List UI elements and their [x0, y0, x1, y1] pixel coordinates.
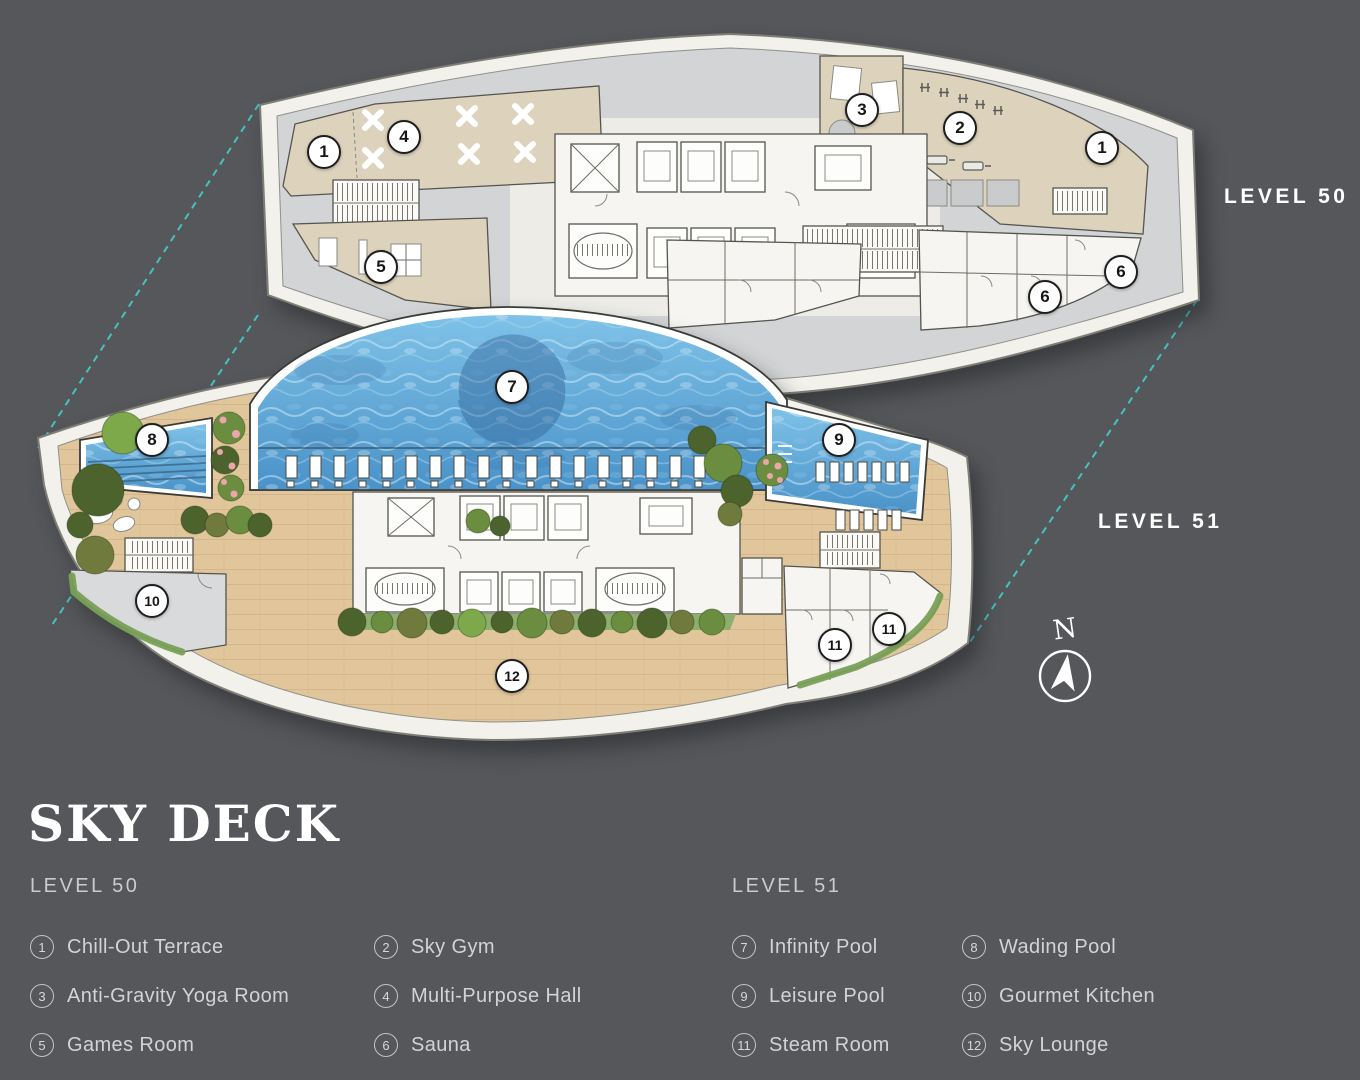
legend-item-label: Sky Lounge [999, 1034, 1109, 1057]
compass-north-label: N [1051, 613, 1079, 647]
legend-item-label: Anti-Gravity Yoga Room [67, 985, 289, 1008]
legend-number-circle: 7 [732, 935, 756, 959]
legend-column-4: 8Wading Pool10Gourmet Kitchen12Sky Loung… [962, 930, 1155, 1062]
plan-badge-7: 7 [495, 370, 529, 404]
compass: N [1020, 604, 1110, 714]
legend-item-5: 5Games Room [30, 1028, 289, 1062]
legend-number-circle: 12 [962, 1033, 986, 1057]
legend-item-8: 8Wading Pool [962, 930, 1155, 964]
legend-item-10: 10Gourmet Kitchen [962, 979, 1155, 1013]
legend-item-label: Games Room [67, 1034, 194, 1057]
page-title: SKY DECK [28, 799, 340, 849]
legend-item-label: Gourmet Kitchen [999, 985, 1155, 1008]
plan-badge-10: 10 [135, 584, 169, 618]
legend-item-11: 11Steam Room [732, 1028, 890, 1062]
legend-number-circle: 1 [30, 935, 54, 959]
legend-number-circle: 3 [30, 984, 54, 1008]
legend-item-label: Wading Pool [999, 936, 1116, 959]
legend-item-label: Multi-Purpose Hall [411, 985, 582, 1008]
legend-item-6: 6Sauna [374, 1028, 582, 1062]
legend-number-circle: 10 [962, 984, 986, 1008]
sky-deck-brochure-page: 14321566 78910111112 LEVEL 50 LEVEL 51 N… [0, 0, 1360, 1080]
legend-item-label: Infinity Pool [769, 936, 878, 959]
plan-badge-11: 11 [872, 612, 906, 646]
legend-item-label: Steam Room [769, 1034, 890, 1057]
legend-item-label: Chill-Out Terrace [67, 936, 223, 959]
level-50-plan-label: LEVEL 50 [1224, 186, 1349, 207]
level-51-badge-layer: 78910111112 [0, 0, 1360, 1080]
legend-number-circle: 9 [732, 984, 756, 1008]
legend-number-circle: 2 [374, 935, 398, 959]
legend-number-circle: 4 [374, 984, 398, 1008]
legend-number-circle: 8 [962, 935, 986, 959]
legend-item-1: 1Chill-Out Terrace [30, 930, 289, 964]
legend-item-4: 4Multi-Purpose Hall [374, 979, 582, 1013]
legend-item-2: 2Sky Gym [374, 930, 582, 964]
legend-column-2: 2Sky Gym4Multi-Purpose Hall6Sauna [374, 930, 582, 1062]
legend-heading-level50: LEVEL 50 [30, 876, 139, 896]
legend-item-label: Leisure Pool [769, 985, 885, 1008]
legend-number-circle: 5 [30, 1033, 54, 1057]
legend-item-9: 9Leisure Pool [732, 979, 890, 1013]
legend-column-3: 7Infinity Pool9Leisure Pool11Steam Room [732, 930, 890, 1062]
legend-item-12: 12Sky Lounge [962, 1028, 1155, 1062]
legend-heading-level51: LEVEL 51 [732, 876, 841, 896]
legend-number-circle: 11 [732, 1033, 756, 1057]
legend-item-7: 7Infinity Pool [732, 930, 890, 964]
compass-needle-icon [1051, 653, 1080, 693]
legend-number-circle: 6 [374, 1033, 398, 1057]
legend-item-label: Sauna [411, 1034, 471, 1057]
plan-badge-11: 11 [818, 628, 852, 662]
plan-badge-9: 9 [822, 423, 856, 457]
legend-column-1: 1Chill-Out Terrace3Anti-Gravity Yoga Roo… [30, 930, 289, 1062]
level-51-plan-label: LEVEL 51 [1098, 511, 1223, 532]
plan-badge-8: 8 [135, 423, 169, 457]
legend-item-3: 3Anti-Gravity Yoga Room [30, 979, 289, 1013]
legend-item-label: Sky Gym [411, 936, 495, 959]
plan-badge-12: 12 [495, 659, 529, 693]
